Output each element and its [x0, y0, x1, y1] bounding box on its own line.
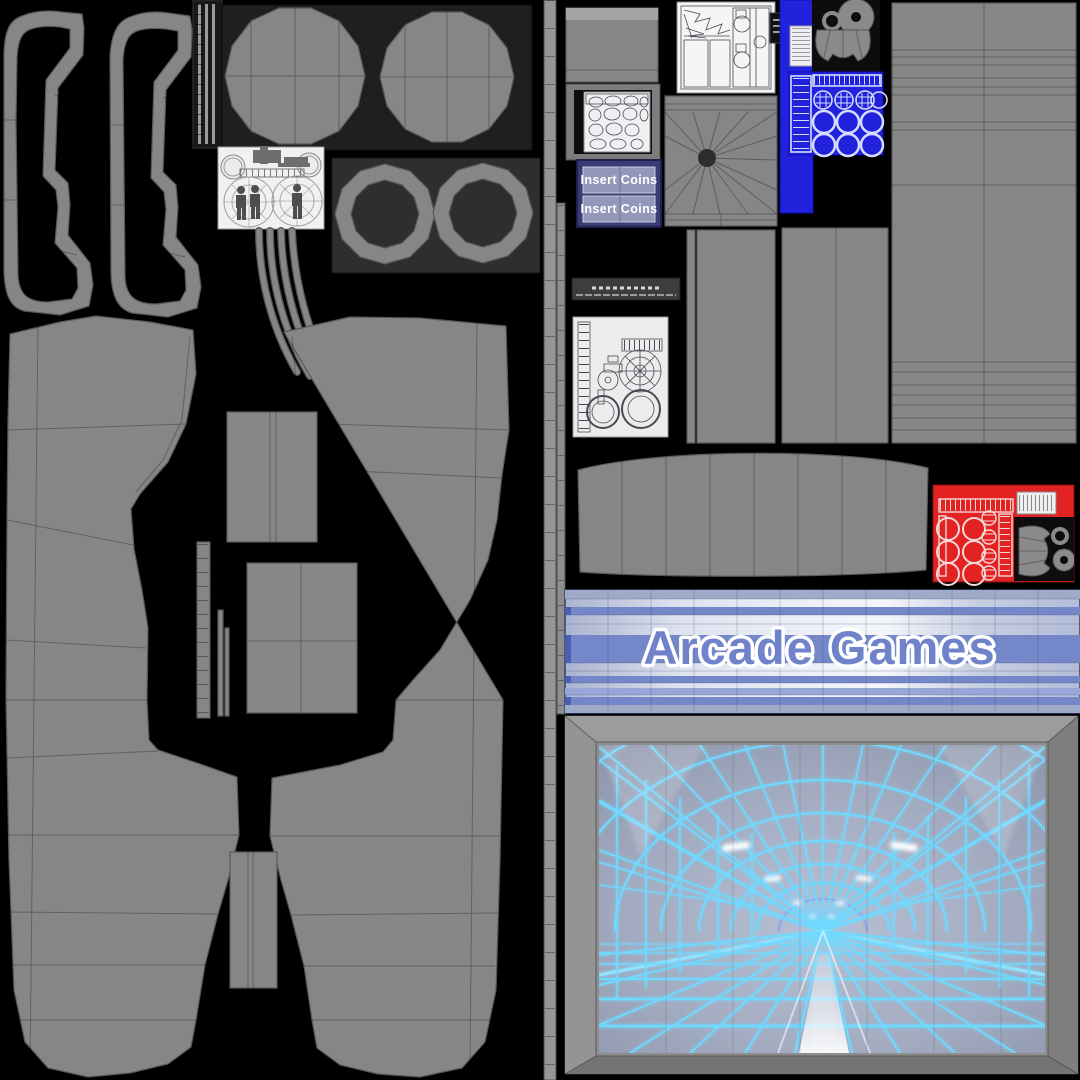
atlas-canvas: Insert Coins Insert Coins: [0, 0, 1080, 1080]
bottom-rect-island: [230, 852, 277, 988]
tall-back-panel: [892, 3, 1076, 443]
coin-door-panel: [665, 96, 777, 226]
speaker-ring-panel: [332, 158, 540, 273]
instruction-label-card: [218, 146, 324, 229]
insert-coins-panel: Insert Coins Insert Coins: [577, 160, 661, 227]
vent-bar-island: [572, 278, 680, 300]
divider-strip-2: [557, 203, 565, 714]
center-rect-island-1: [227, 412, 317, 542]
curved-top-island: [578, 450, 928, 577]
parts-schematic-card: [677, 2, 775, 93]
side-trim-island-left: [4, 11, 93, 315]
insert-coins-label-bottom: Insert Coins: [580, 202, 657, 216]
divider-strip: [544, 0, 556, 1080]
t-molding-strip-panel: [193, 0, 222, 148]
center-rect-island-2: [247, 563, 357, 713]
player2-control-panel-red: [933, 485, 1075, 585]
mechanism-schematic-card: [573, 317, 668, 437]
player1-control-panel-blue: [789, 72, 887, 156]
insert-coins-button-bottom[interactable]: Insert Coins: [580, 196, 657, 222]
joystick-parts-black-p2: [1014, 517, 1075, 581]
coin-door-lock-circle: [698, 149, 716, 167]
joystick-parts-black-p1: [812, 0, 880, 72]
spoked-wheel-left: [224, 177, 274, 227]
coin-door-top-panel: [566, 8, 658, 82]
mech-plate-frame: [566, 84, 660, 160]
side-trim-island-right: [110, 12, 201, 317]
mid-rect-islands: [687, 228, 888, 443]
marquee-title: Arcade Games: [643, 621, 996, 674]
thin-strip-islands: [197, 542, 229, 718]
uv-texture-atlas: Insert Coins Insert Coins: [0, 0, 1080, 1080]
insert-coins-button-top[interactable]: Insert Coins: [580, 167, 657, 193]
marquee-island: Arcade Games: [565, 590, 1080, 713]
speaker-disc-panel: [222, 5, 532, 150]
insert-coins-label-top: Insert Coins: [580, 173, 657, 187]
